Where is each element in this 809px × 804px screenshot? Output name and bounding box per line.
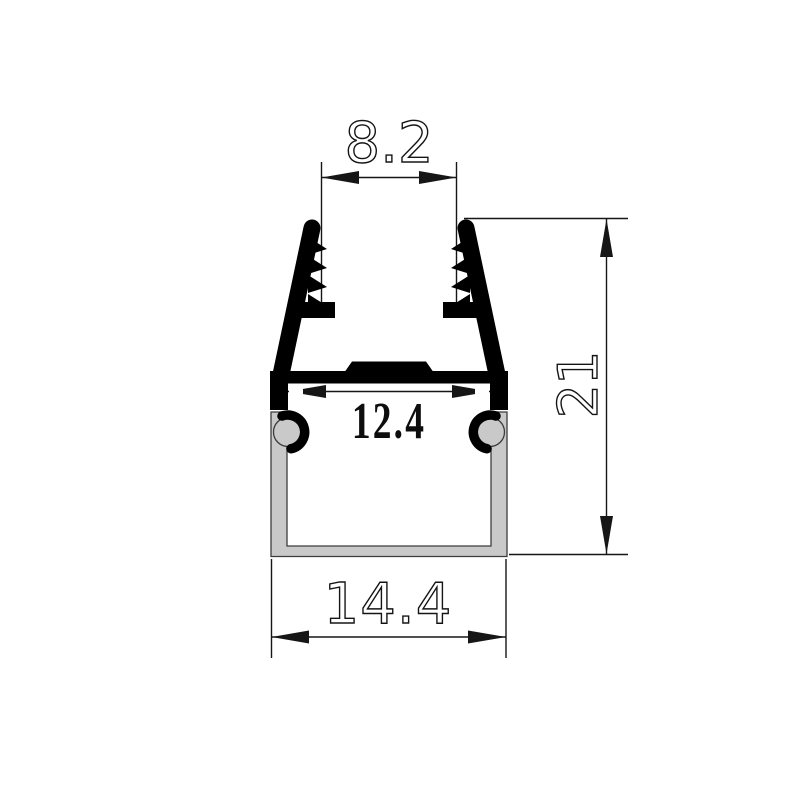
dimension-label-overall-width: 14.4 xyxy=(288,577,488,633)
technical-drawing-canvas: 8.2 12.4 14.4 21 xyxy=(0,0,809,804)
dimension-label-top-opening-width: 8.2 xyxy=(289,116,489,172)
arrowhead-up-icon xyxy=(600,219,613,257)
clip-center-bump xyxy=(345,362,433,372)
dimension-label-inner-width: 12.4 xyxy=(317,396,461,448)
arrowhead-down-icon xyxy=(600,516,613,554)
dimension-label-overall-height: 21 xyxy=(552,330,598,440)
clip-base-bar xyxy=(280,371,498,384)
dimension-top-width xyxy=(322,162,457,310)
